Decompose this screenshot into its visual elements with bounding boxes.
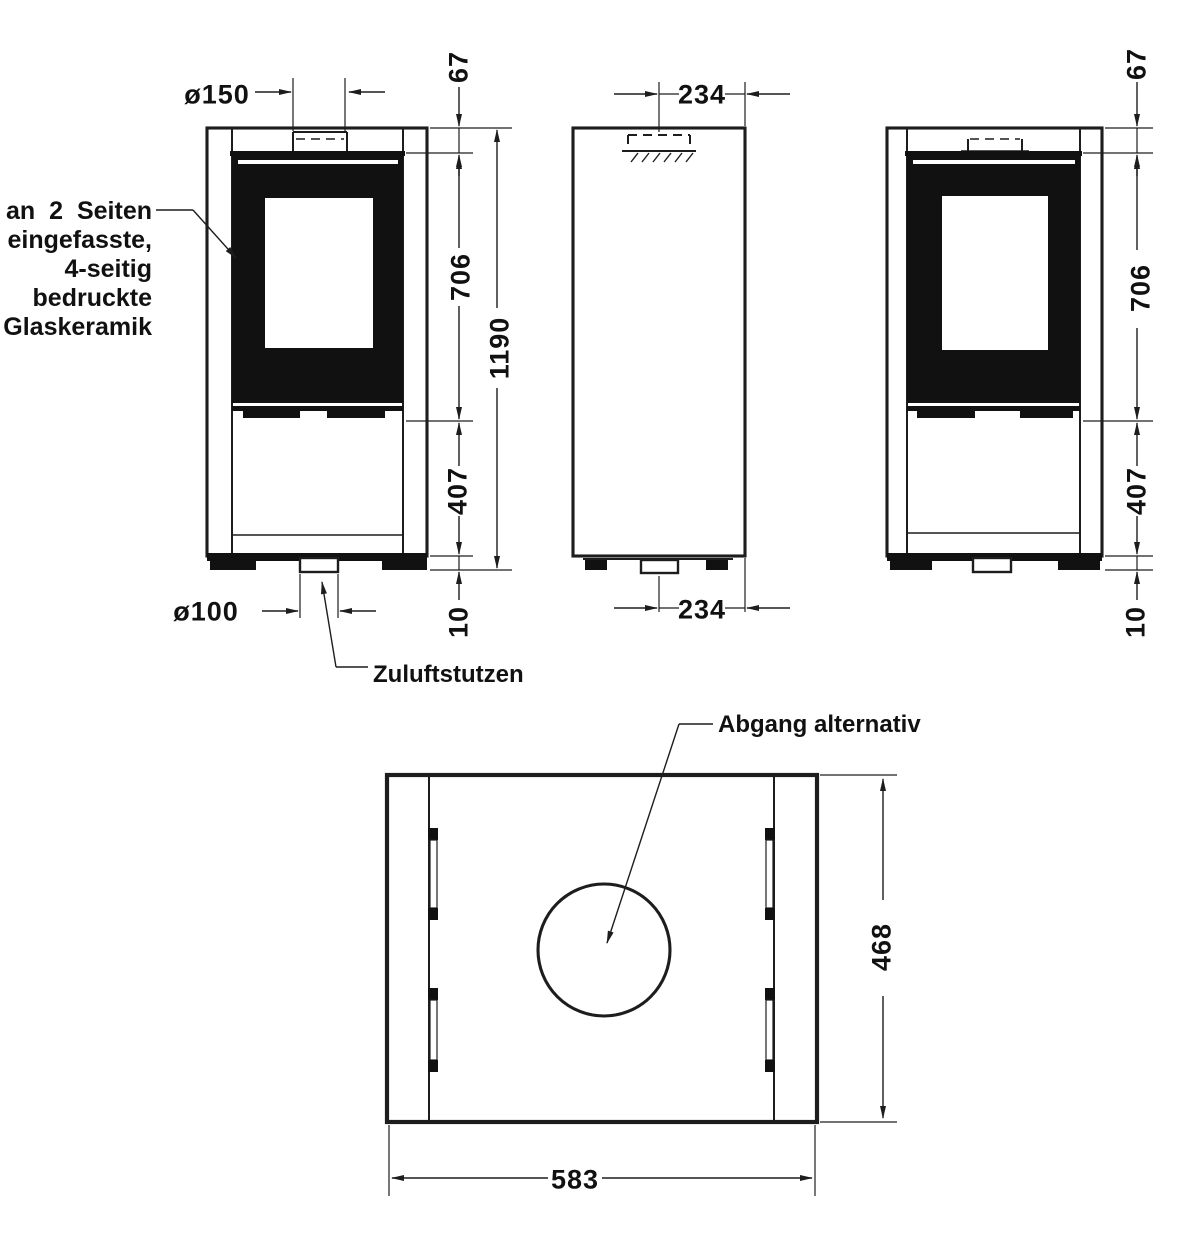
side-rear-foot — [706, 560, 728, 570]
rear-door-top-bar — [905, 151, 1082, 156]
rear-glass-height-label: 706 — [1125, 264, 1155, 312]
front-viewing-window — [265, 198, 373, 348]
front-door-top-bar — [230, 151, 405, 156]
glass-note-line-2: eingefasste, — [7, 226, 152, 254]
rear-base-height-label: 10 — [1120, 606, 1150, 638]
front-inlet-diameter-label: ø100 — [173, 596, 239, 626]
front-top-offset-label: 67 — [443, 51, 473, 83]
front-air-inlet-stub — [300, 558, 338, 572]
rear-air-inlet-stub — [973, 558, 1011, 572]
plan-width-label: 583 — [551, 1164, 599, 1194]
abgang-alternativ-label: Abgang alternativ — [718, 711, 921, 738]
side-body-outline — [573, 128, 745, 556]
side-front-foot — [585, 560, 607, 570]
glass-note-line-3: 4-seitig — [64, 255, 152, 283]
rear-view — [887, 128, 1102, 572]
plan-alternative-flue-outlet-circle — [538, 884, 670, 1016]
glass-note-line-4: bedruckte — [33, 284, 153, 312]
front-left-foot — [210, 561, 256, 570]
plan-depth-label: 468 — [866, 923, 896, 971]
rear-dimensions: 67 706 407 10 — [1083, 48, 1155, 638]
rear-right-foot — [1058, 561, 1100, 570]
front-base-height-label: 10 — [443, 606, 473, 638]
zuluftstutzen-label: Zuluftstutzen — [373, 661, 524, 688]
rear-door-bottom-band — [907, 406, 1080, 411]
front-total-height-label: 1190 — [484, 317, 514, 380]
plan-view: Abgang alternativ — [387, 711, 921, 1122]
side-view — [573, 128, 745, 573]
glass-note-line-5: Glaskeramik — [3, 313, 152, 341]
plan-dimensions: 468 583 — [389, 775, 897, 1196]
front-door-bottom-band — [232, 406, 403, 411]
glass-note: an 2 Seiten eingefasste, 4-seitig bedruc… — [3, 197, 236, 341]
side-air-inlet-stub — [641, 560, 678, 573]
side-dimensions: 234 234 — [614, 79, 790, 624]
side-bottom-inlet-offset-label: 234 — [678, 594, 726, 624]
front-flue-diameter-label: ø150 — [184, 79, 250, 109]
front-right-foot — [382, 561, 427, 570]
front-glass-height-label: 706 — [445, 253, 475, 301]
rear-lower-height-label: 407 — [1121, 467, 1151, 515]
side-top-flue-offset-label: 234 — [678, 79, 726, 109]
front-view — [207, 128, 427, 572]
rear-left-foot — [890, 561, 932, 570]
glass-note-line-1: an 2 Seiten — [6, 197, 152, 225]
technical-drawing-stove: ø150 67 706 1190 407 10 ø100 — [0, 0, 1200, 1249]
front-lower-height-label: 407 — [442, 467, 472, 515]
plan-body-outline — [387, 775, 817, 1122]
rear-viewing-window — [942, 196, 1048, 350]
rear-top-offset-label: 67 — [1121, 48, 1151, 80]
